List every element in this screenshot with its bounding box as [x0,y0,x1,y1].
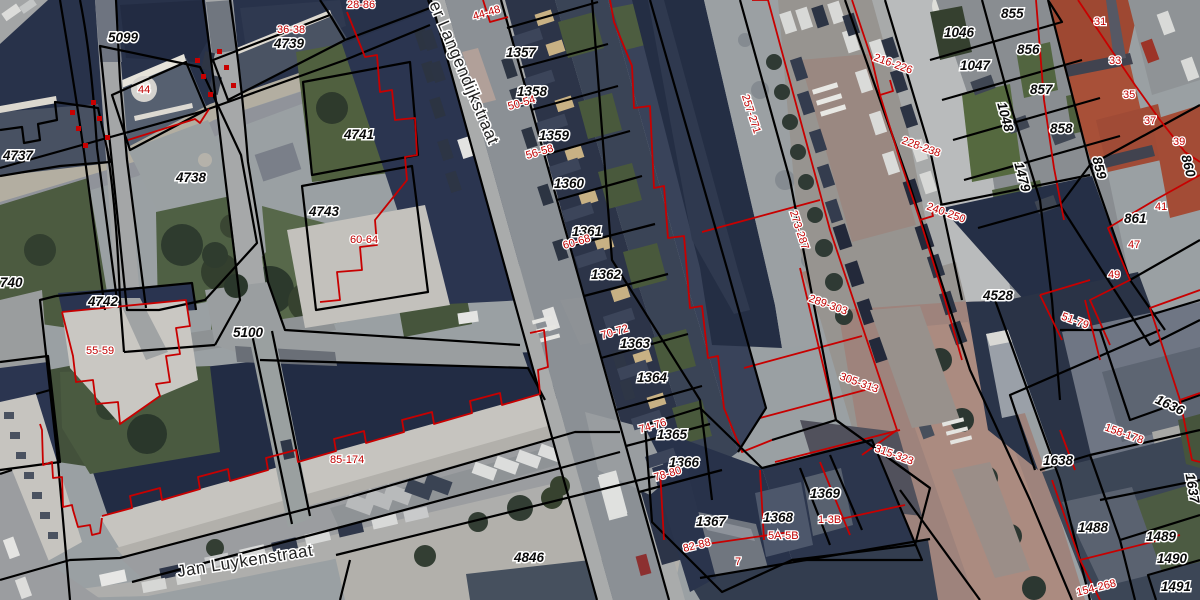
svg-text:1360: 1360 [554,176,585,191]
svg-text:35: 35 [1123,89,1135,101]
svg-text:1489: 1489 [1146,529,1177,544]
svg-text:1638: 1638 [1043,453,1074,468]
svg-text:4528: 4528 [982,288,1014,303]
svg-text:856: 856 [1017,42,1040,57]
svg-text:1368: 1368 [763,510,794,525]
svg-text:1362: 1362 [591,267,622,282]
svg-text:4742: 4742 [87,294,119,309]
svg-text:55-59: 55-59 [86,345,114,357]
svg-text:28-86: 28-86 [347,0,375,11]
svg-text:47: 47 [1128,239,1140,251]
svg-text:7: 7 [735,556,741,568]
svg-text:1365: 1365 [657,427,688,442]
svg-text:5100: 5100 [233,325,264,340]
svg-text:1047: 1047 [960,58,992,73]
svg-text:4738: 4738 [175,170,207,185]
svg-text:740: 740 [0,275,23,290]
svg-text:855: 855 [1001,6,1024,21]
svg-text:1367: 1367 [696,514,728,529]
svg-text:1-3B: 1-3B [818,514,841,526]
svg-text:1357: 1357 [506,45,538,60]
svg-text:5099: 5099 [108,30,139,45]
svg-text:60-64: 60-64 [350,234,378,246]
svg-text:4739: 4739 [273,36,305,51]
svg-text:1364: 1364 [637,370,668,385]
svg-text:1488: 1488 [1078,520,1109,535]
svg-text:36-38: 36-38 [277,24,305,36]
svg-text:4741: 4741 [343,127,374,142]
svg-text:1359: 1359 [539,128,570,143]
svg-text:1491: 1491 [1161,579,1191,594]
svg-text:5A-5B: 5A-5B [768,530,799,542]
svg-text:858: 858 [1050,121,1073,136]
svg-text:39: 39 [1173,136,1185,148]
svg-text:4737: 4737 [2,148,35,163]
svg-text:85-174: 85-174 [330,454,364,466]
svg-text:49: 49 [1108,269,1120,281]
svg-text:31: 31 [1094,16,1106,28]
svg-text:1490: 1490 [1157,551,1188,566]
svg-text:1363: 1363 [620,336,651,351]
svg-text:861: 861 [1124,211,1147,226]
svg-text:1046: 1046 [944,25,975,40]
svg-text:4846: 4846 [513,550,545,565]
svg-text:857: 857 [1030,82,1054,97]
svg-text:4743: 4743 [308,204,340,219]
svg-text:1369: 1369 [810,486,841,501]
svg-text:37: 37 [1144,115,1156,127]
svg-text:33: 33 [1109,55,1121,67]
svg-text:44: 44 [138,84,150,96]
svg-text:41: 41 [1155,201,1167,213]
